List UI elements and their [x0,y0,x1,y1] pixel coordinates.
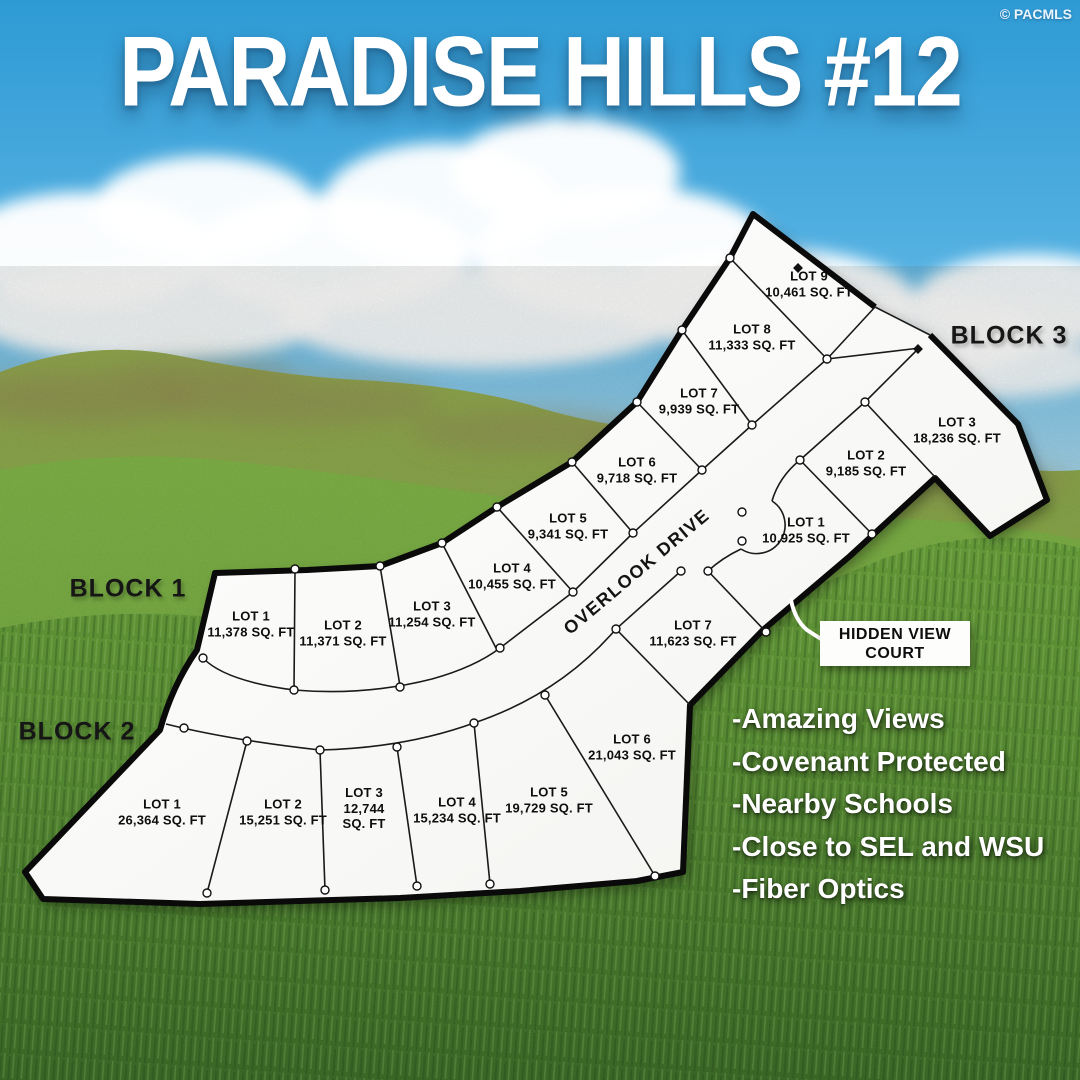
lot-area: 9,341 SQ. FT [528,526,608,542]
page-title: PARADISE HILLS #12 [119,16,961,130]
lot-label-b1-3: LOT 3 11,254 SQ. FT [388,599,475,630]
lot-label-b2-1: LOT 1 26,364 SQ. FT [118,797,206,828]
lot-area: 11,254 SQ. FT [388,614,475,630]
lot-name: LOT 2 [239,797,327,813]
lot-area: 21,043 SQ. FT [588,747,676,763]
lot-label-b1-8: LOT 8 11,333 SQ. FT [708,322,795,353]
feature-item: -Fiber Optics [732,868,1044,911]
lot-label-b1-5: LOT 5 9,341 SQ. FT [528,511,608,542]
lot-label-b2-5: LOT 5 19,729 SQ. FT [505,785,593,816]
lot-label-b1-2: LOT 2 11,371 SQ. FT [299,618,386,649]
lot-label-b1-9: LOT 9 10,461 SQ. FT [765,269,853,300]
lot-area: 12,744 SQ. FT [333,800,395,831]
lot-name: LOT 5 [528,511,608,527]
lot-area: 10,925 SQ. FT [762,530,850,546]
lot-name: LOT 2 [299,618,386,634]
lot-label-b2-2: LOT 2 15,251 SQ. FT [239,797,327,828]
lot-label-b1-4: LOT 4 10,455 SQ. FT [468,561,556,592]
block-3-label: BLOCK 3 [951,322,1068,351]
lot-name: LOT 3 [913,415,1001,431]
feature-item: -Amazing Views [732,698,1044,741]
hidden-view-court-callout: HIDDEN VIEW COURT [820,621,970,666]
lot-area: 11,378 SQ. FT [207,624,294,640]
lot-area: 10,455 SQ. FT [468,576,556,592]
lot-label-b2-7: LOT 7 11,623 SQ. FT [649,618,736,649]
lot-name: LOT 4 [468,561,556,577]
lot-name: LOT 6 [597,455,677,471]
lot-name: LOT 1 [762,515,850,531]
lot-name: LOT 7 [649,618,736,634]
lot-name: LOT 6 [588,732,676,748]
lot-label-b3-3: LOT 3 18,236 SQ. FT [913,415,1001,446]
lot-area: 11,371 SQ. FT [299,633,386,649]
lot-area: 10,461 SQ. FT [765,284,853,300]
lot-label-b2-3: LOT 3 12,744 SQ. FT [333,785,395,832]
callout-line2: COURT [865,644,924,663]
lot-area: 15,234 SQ. FT [413,810,501,826]
lot-area: 15,251 SQ. FT [239,812,327,828]
lot-area: 19,729 SQ. FT [505,800,593,816]
lot-area: 26,364 SQ. FT [118,812,206,828]
feature-item: -Nearby Schools [732,783,1044,826]
lot-label-b1-1: LOT 1 11,378 SQ. FT [207,609,294,640]
lot-name: LOT 4 [413,795,501,811]
lot-label-b3-1: LOT 1 10,925 SQ. FT [762,515,850,546]
block-1-label: BLOCK 1 [70,575,187,604]
lot-name: LOT 3 [333,785,395,801]
feature-item: -Close to SEL and WSU [732,826,1044,869]
block-2-label: BLOCK 2 [19,718,136,747]
lot-label-b1-6: LOT 6 9,718 SQ. FT [597,455,677,486]
lot-label-b1-7: LOT 7 9,939 SQ. FT [659,386,739,417]
lot-name: LOT 2 [826,448,906,464]
lot-label-b2-6: LOT 6 21,043 SQ. FT [588,732,676,763]
lot-name: LOT 9 [765,269,853,285]
lot-name: LOT 7 [659,386,739,402]
lot-label-b2-4: LOT 4 15,234 SQ. FT [413,795,501,826]
lot-area: 11,333 SQ. FT [708,337,795,353]
lot-area: 9,718 SQ. FT [597,470,677,486]
lot-name: LOT 5 [505,785,593,801]
lot-area: 9,939 SQ. FT [659,401,739,417]
callout-line1: HIDDEN VIEW [839,625,951,644]
lot-name: LOT 8 [708,322,795,338]
lot-label-b3-2: LOT 2 9,185 SQ. FT [826,448,906,479]
lot-name: LOT 1 [207,609,294,625]
poster-canvas: PARADISE HILLS #12 © PACMLS BLOCK 1 BLOC… [0,0,1080,1080]
lot-area: 11,623 SQ. FT [649,633,736,649]
lot-name: LOT 1 [118,797,206,813]
lot-name: LOT 3 [388,599,475,615]
feature-list: -Amazing Views -Covenant Protected -Near… [732,698,1044,911]
lot-area: 18,236 SQ. FT [913,430,1001,446]
lot-area: 9,185 SQ. FT [826,463,906,479]
feature-item: -Covenant Protected [732,741,1044,784]
watermark-pacmls: © PACMLS [1000,6,1072,22]
